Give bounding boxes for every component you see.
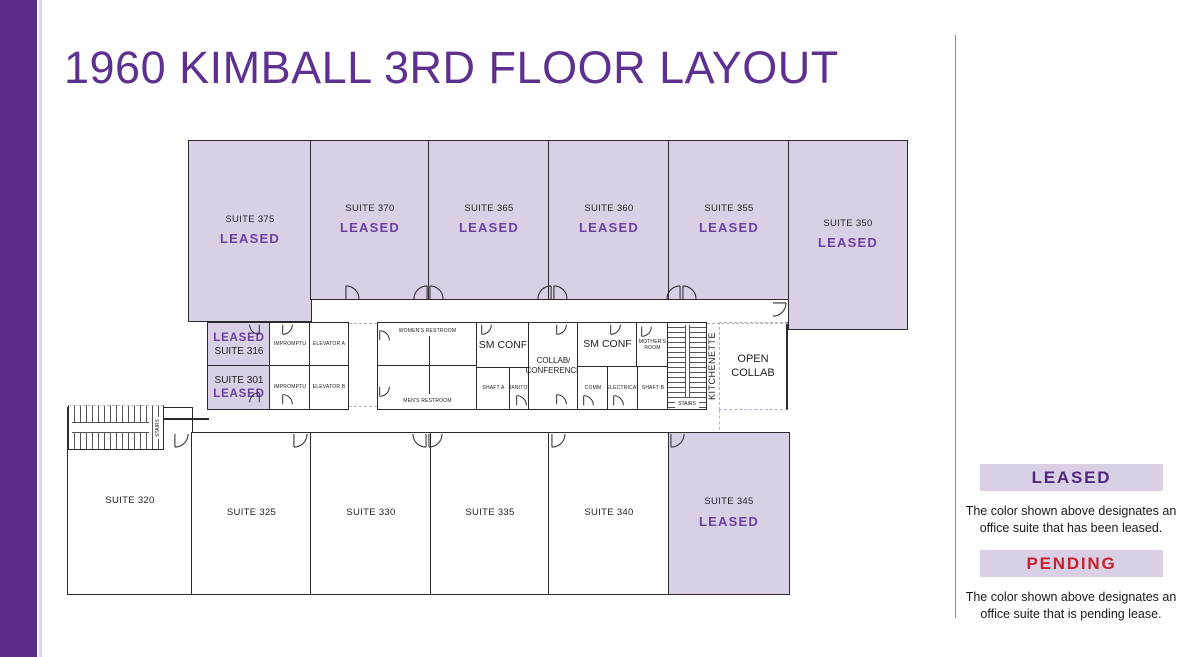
stairs-center-landing <box>685 325 690 397</box>
impromptu-room-a: IMPROMPTU <box>269 322 311 367</box>
suite-345: SUITE 345 LEASED <box>668 432 790 595</box>
elevator-a-label: ELEVATOR A <box>313 341 345 348</box>
shaft-b-label: SHAFT B <box>642 385 664 392</box>
suite-350: SUITE 350 LEASED <box>788 140 908 330</box>
suite-360-status: LEASED <box>579 220 639 237</box>
suite-330: SUITE 330 <box>310 432 432 595</box>
stairs-center: STAIRS <box>667 322 707 410</box>
brand-sidebar-stripe <box>39 0 42 657</box>
shaft-a: SHAFT A <box>476 367 511 410</box>
suite-365-status: LEASED <box>459 220 519 237</box>
suite-370-status: LEASED <box>340 220 400 237</box>
open-collab-area: OPEN COLLAB <box>719 322 788 410</box>
suite-316-label: SUITE 316 <box>215 345 264 358</box>
elevator-a: ELEVATOR A <box>309 322 349 367</box>
womens-restroom-label: WOMEN'S RESTROOM <box>399 328 457 335</box>
suite-325-label: SUITE 325 <box>227 507 276 519</box>
collab-conference-room: COLLAB/ CONFERENCE <box>528 322 579 410</box>
corridor-dash-bottom <box>349 406 377 407</box>
legend-pending-description: The color shown above designates an offi… <box>962 589 1180 623</box>
open-collab-dash-top <box>707 323 788 324</box>
small-conference-2-label: SM CONF <box>583 338 631 352</box>
legend-pending-label: PENDING <box>1026 554 1116 574</box>
page-title: 1960 KIMBALL 3RD FLOOR LAYOUT <box>64 42 839 94</box>
impromptu-room-b: IMPROMPTU <box>269 365 311 410</box>
door-arc-icon <box>772 302 787 317</box>
suite-360-label: SUITE 360 <box>584 203 633 215</box>
stairs-left-landing <box>72 422 149 433</box>
comm-room: COMM <box>577 366 609 410</box>
suite-340-label: SUITE 340 <box>584 507 633 519</box>
legend-leased-label: LEASED <box>1032 468 1112 488</box>
corridor-wall-segment <box>163 418 209 420</box>
open-collab-label-2: COLLAB <box>731 366 774 380</box>
impromptu-a-label: IMPROMPTU <box>274 341 306 348</box>
kitchenette-label: KITCHENETTE <box>707 332 717 400</box>
corridor-dash-top <box>349 323 377 324</box>
small-conference-1-label: SM CONF <box>479 339 527 353</box>
legend-pending-swatch: PENDING <box>980 550 1163 577</box>
shaft-a-label: SHAFT A <box>482 385 504 392</box>
small-conference-1: SM CONF <box>476 322 530 369</box>
legend-leased-description: The color shown above designates an offi… <box>962 503 1180 537</box>
small-conference-2: SM CONF <box>577 322 638 368</box>
mothers-room: MOTHER'S ROOM <box>636 322 669 368</box>
open-collab-label-1: OPEN <box>737 352 768 366</box>
floor-plan-page: 1960 KIMBALL 3RD FLOOR LAYOUT SUITE 375 … <box>0 0 1200 657</box>
suite-355-label: SUITE 355 <box>704 203 753 215</box>
suite-301-label: SUITE 301 <box>215 374 264 387</box>
brand-sidebar <box>0 0 37 657</box>
suite-340: SUITE 340 <box>548 432 670 595</box>
mothers-room-label-2: ROOM <box>644 345 660 352</box>
suite-370-label: SUITE 370 <box>345 203 394 215</box>
electrical-room: ELECTRICAL <box>607 366 639 410</box>
elevator-b-label: ELEVATOR B <box>313 384 346 391</box>
suite-350-label: SUITE 350 <box>823 218 872 230</box>
stairs-left: STAIRS <box>68 405 164 450</box>
mens-restroom-label: MEN'S RESTROOM <box>403 398 451 405</box>
suite-370: SUITE 370 LEASED <box>310 140 430 300</box>
suite-375-status: LEASED <box>220 231 280 248</box>
impromptu-b-label: IMPROMPTU <box>274 384 306 391</box>
shaft-b: SHAFT B <box>637 366 669 410</box>
stairs-left-label: STAIRS <box>154 417 163 439</box>
suite-375: SUITE 375 LEASED <box>188 140 312 322</box>
stairs-center-label: STAIRS <box>675 400 699 409</box>
suite-375-label: SUITE 375 <box>225 214 274 226</box>
suite-345-label: SUITE 345 <box>704 496 753 508</box>
restroom-divider-wall <box>429 336 430 394</box>
comm-label: COMM <box>585 385 602 392</box>
legend-leased-swatch: LEASED <box>980 464 1163 491</box>
suite-335: SUITE 335 <box>430 432 550 595</box>
suite-320-label: SUITE 320 <box>105 495 154 507</box>
collab-conference-label-2: CONFERENCE <box>526 366 582 376</box>
suite-335-label: SUITE 335 <box>465 507 514 519</box>
suite-325: SUITE 325 <box>191 432 312 595</box>
suite-365-label: SUITE 365 <box>464 203 513 215</box>
suite-345-status: LEASED <box>699 514 759 531</box>
suite-355: SUITE 355 LEASED <box>668 140 790 300</box>
elevator-b: ELEVATOR B <box>309 365 349 410</box>
suite-360: SUITE 360 LEASED <box>548 140 670 300</box>
suite-350-status: LEASED <box>818 235 878 252</box>
suite-365: SUITE 365 LEASED <box>428 140 550 300</box>
collab-conference-label-1: COLLAB/ <box>537 356 571 366</box>
kitchenette-zone: KITCHENETTE <box>705 322 719 410</box>
suite-316-status: LEASED <box>213 331 264 346</box>
suite-355-status: LEASED <box>699 220 759 237</box>
mens-restroom: MEN'S RESTROOM <box>377 365 478 410</box>
legend-divider <box>955 35 956 618</box>
kitchenette-dash <box>719 410 720 430</box>
suite-301: SUITE 301 LEASED <box>207 365 271 410</box>
suite-330-label: SUITE 330 <box>346 507 395 519</box>
suite-316: LEASED SUITE 316 <box>207 322 271 367</box>
suite-301-status: LEASED <box>213 387 264 402</box>
womens-restroom: WOMEN'S RESTROOM <box>377 322 478 367</box>
electrical-label: ELECTRICAL <box>607 385 640 392</box>
